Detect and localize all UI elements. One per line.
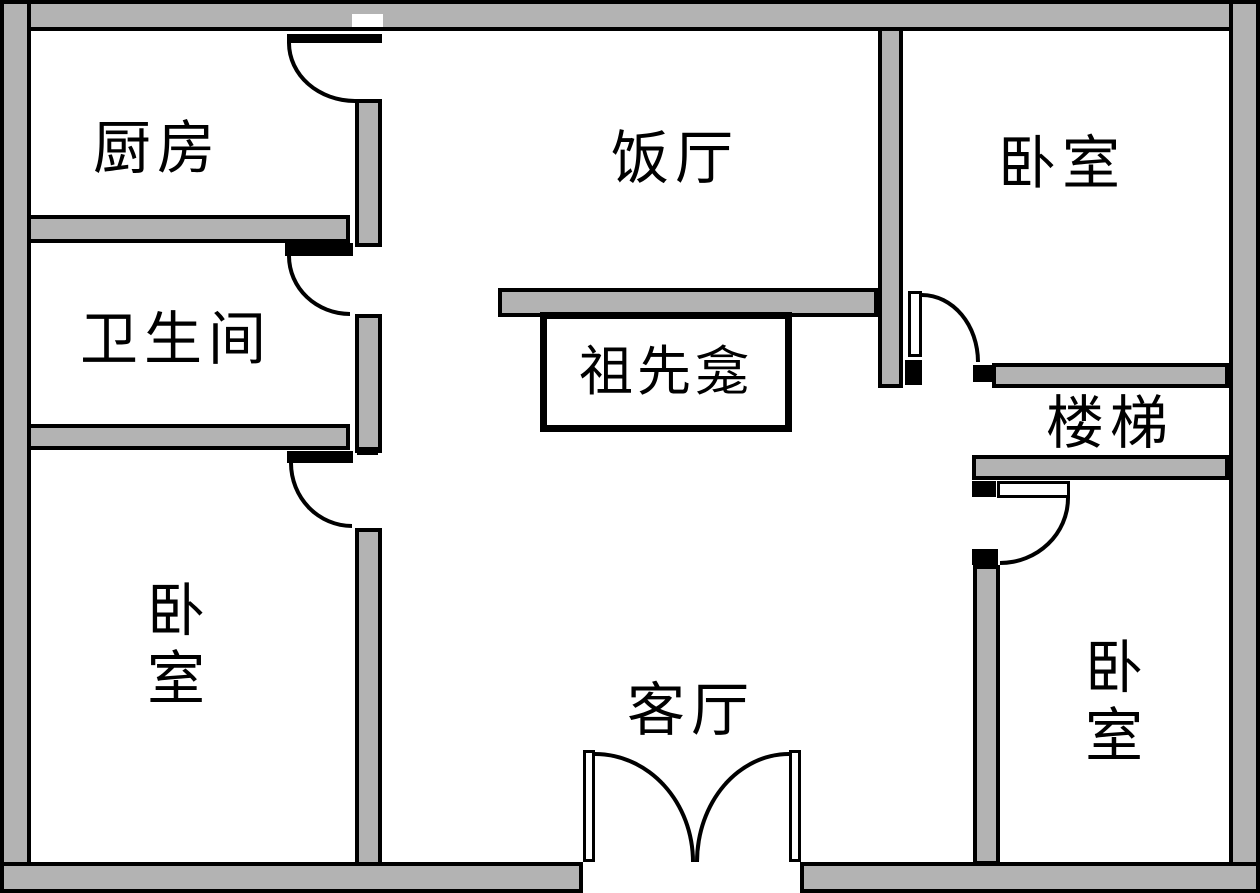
entrance-door-arc-left [595, 752, 695, 862]
entrance-door-arc-right [695, 752, 789, 862]
bedroom-ne-door-jamb-left [905, 360, 922, 385]
kitchen-door-leaf [287, 34, 382, 43]
bedroom-bottom-right-label-char-2: 室 [1085, 702, 1143, 770]
bedroom-sw-door-jamb [357, 447, 378, 455]
wall-outer-top [0, 0, 1260, 31]
entrance-door-leaf-left [583, 750, 595, 862]
bedroom-sw-door-arc [289, 463, 352, 528]
bedroom-top-right-label: 卧室 [998, 134, 1126, 192]
wall-dining-east [878, 27, 903, 388]
kitchen-door-arc [287, 43, 355, 103]
stairs-label: 楼梯 [1046, 394, 1174, 452]
bedroom-ne-door-leaf [908, 291, 922, 357]
bedroom-se-door-arc [1000, 498, 1070, 565]
wall-outer-bottom-left [0, 862, 583, 893]
living-room-label: 客厅 [627, 681, 755, 739]
bedroom-ne-door-jamb-right [973, 365, 992, 382]
bedroom-se-door-jamb-top [972, 481, 996, 497]
kitchen-label: 厨房 [93, 119, 221, 177]
ancestor-shrine-label: 祖先龛 [579, 345, 753, 399]
bathroom-door-leaf [285, 243, 353, 256]
wall-bedroom-sw-east [355, 528, 382, 866]
wall-stairs-south [972, 455, 1229, 480]
bedroom-bottom-right-label-char-1: 卧 [1085, 634, 1143, 702]
entrance-door-leaf-right [789, 750, 801, 862]
bedroom-bottom-left-label: 卧 室 [147, 577, 205, 714]
bedroom-bottom-right-label: 卧 室 [1085, 634, 1143, 771]
wall-outer-bottom-right [800, 862, 1260, 893]
wall-stairs-north [992, 363, 1229, 388]
bedroom-bottom-left-label-char-1: 卧 [147, 577, 205, 645]
wall-bathroom-east [355, 314, 382, 453]
bedroom-ne-door-arc [922, 293, 980, 362]
floor-plan: 祖先龛 厨房 饭厅 卧室 卫生间 楼梯 客厅 卧 室 卧 室 [0, 0, 1260, 893]
wall-bathroom-south [27, 424, 350, 450]
bedroom-se-door-leaf [997, 481, 1070, 498]
bedroom-sw-door-leaf [287, 451, 353, 463]
dining-room-label: 饭厅 [611, 129, 739, 187]
wall-outer-right [1229, 0, 1260, 893]
ancestor-shrine-box: 祖先龛 [540, 312, 792, 432]
wall-bedroom-se-west [973, 565, 1000, 865]
kitchen-door-frame-notch [352, 14, 383, 27]
bedroom-se-door-jamb-bottom [972, 549, 998, 565]
wall-kitchen-south [27, 215, 350, 243]
bathroom-label: 卫生间 [80, 310, 272, 368]
bathroom-door-arc [287, 256, 350, 316]
bedroom-bottom-left-label-char-2: 室 [147, 645, 205, 713]
wall-kitchen-east [355, 99, 382, 247]
